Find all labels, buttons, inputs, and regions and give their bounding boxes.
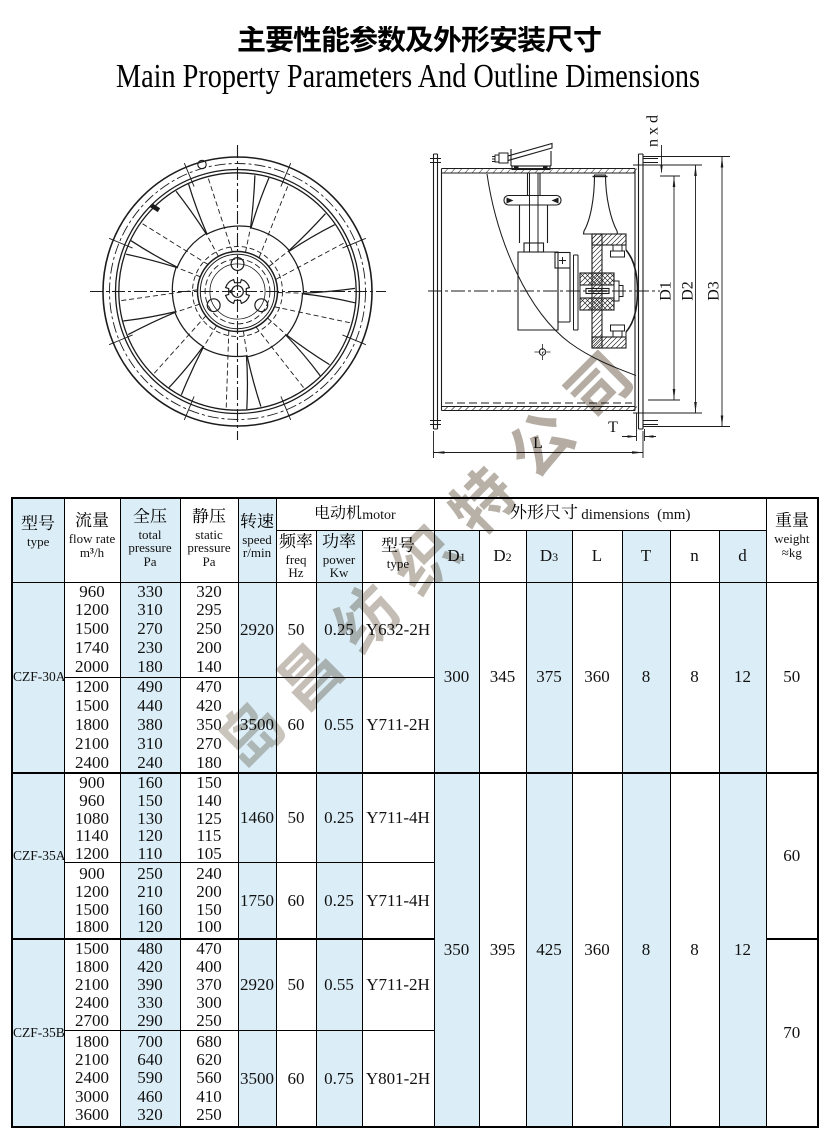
svg-text:D2: D2 xyxy=(680,281,697,301)
svg-text:n x d: n x d xyxy=(645,115,662,147)
svg-text:D1: D1 xyxy=(658,281,675,301)
svg-text:D3: D3 xyxy=(706,281,723,301)
svg-text:L: L xyxy=(533,435,543,452)
svg-text:T: T xyxy=(608,419,618,436)
